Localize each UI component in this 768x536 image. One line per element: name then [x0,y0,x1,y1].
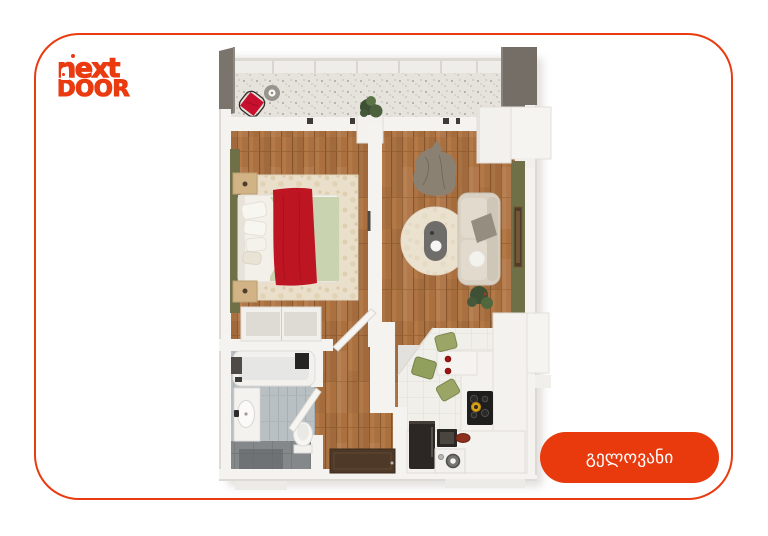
peninsula-counter [437,351,477,375]
pillow [243,220,267,237]
round-pillow [469,251,485,267]
cooktop [467,391,493,425]
logo-door-knob [62,73,65,76]
bathtub [233,351,315,386]
pillow [245,237,266,252]
red-bowl [456,434,470,443]
pillow [242,251,261,265]
red-blanket [273,188,317,286]
fridge [409,421,435,469]
page: next DOOR [0,0,768,536]
shower-fixture [295,353,309,369]
logo-accent-dot [71,54,75,58]
oven-box [437,429,457,447]
logo-door-icon [61,67,69,80]
vanity-sink [234,388,260,441]
floor-plan-svg [215,45,555,500]
balcony-dark-wall-left [219,47,235,117]
sofa [458,193,500,285]
entry [330,449,395,473]
tall-cabinet [477,107,511,163]
floor-plan-image [215,45,555,500]
bed [238,188,339,286]
next-door-logo[interactable]: next DOOR [57,59,129,100]
balcony-side-table [264,85,280,101]
wardrobe [241,307,321,341]
location-button[interactable]: გელოვანი [540,432,719,483]
washing-machine [435,449,465,473]
bath-wall-cabinet [231,357,242,374]
listing-card: next DOOR [34,33,733,500]
coffee-table [424,221,447,261]
